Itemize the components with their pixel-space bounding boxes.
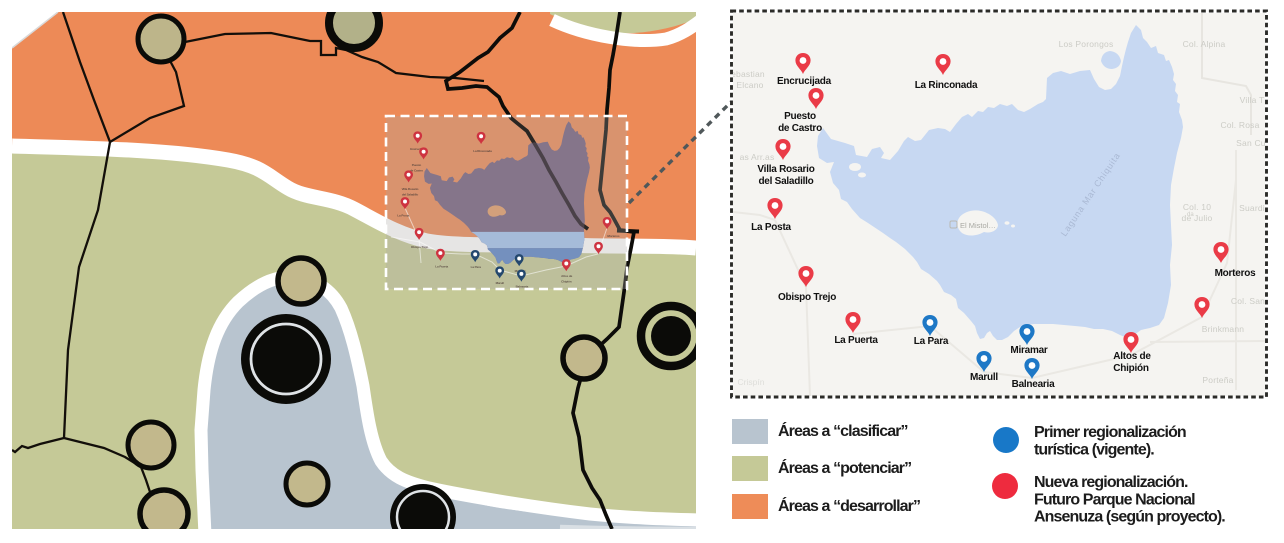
svg-text:Áreas a “potenciar”: Áreas a “potenciar” [778,458,911,477]
svg-text:Marull: Marull [496,281,505,285]
svg-text:Nueva regionalización.: Nueva regionalización. [1034,474,1188,491]
svg-text:Col. Rosa: Col. Rosa [1220,120,1259,130]
svg-text:Puesto: Puesto [412,163,422,167]
svg-text:La Puerta: La Puerta [435,265,448,269]
svg-text:Marull: Marull [970,372,998,383]
svg-text:ebastian: ebastian [731,69,765,79]
svg-text:del Saladillo: del Saladillo [758,176,813,187]
svg-text:La Posta: La Posta [751,222,791,233]
svg-text:Obispo Trejo: Obispo Trejo [411,245,428,249]
svg-text:Porteña: Porteña [1202,375,1233,385]
svg-text:del Saladillo: del Saladillo [402,193,418,197]
svg-text:Col. San: Col. San [1231,296,1265,306]
svg-text:Brinkmann: Brinkmann [1202,324,1245,334]
svg-text:turística (vigente).: turística (vigente). [1034,441,1154,458]
svg-text:Futuro Parque Nacional: Futuro Parque Nacional [1034,491,1195,508]
svg-text:La Para: La Para [914,336,949,347]
svg-text:San Cui: San Cui [1236,138,1268,148]
svg-text:La Posta: La Posta [397,213,409,217]
svg-text:Ansenuza (según proyecto).: Ansenuza (según proyecto). [1034,509,1225,526]
svg-text:La Puerta: La Puerta [834,335,878,346]
svg-text:La Rinconada: La Rinconada [473,149,492,153]
svg-text:Los Porongos: Los Porongos [1059,39,1114,49]
svg-text:Col. Alpina: Col. Alpina [1183,39,1226,49]
svg-text:Primer regionalización: Primer regionalización [1034,424,1186,441]
svg-text:El Mistol…: El Mistol… [960,221,996,230]
svg-text:Áreas a “desarrollar”: Áreas a “desarrollar” [778,496,920,515]
svg-text:Puesto: Puesto [784,111,816,122]
svg-text:Col. 10: Col. 10 [1183,202,1211,212]
svg-text:Elcano: Elcano [736,80,763,90]
svg-text:Miramar: Miramar [1010,345,1048,356]
svg-text:Villa Rosario: Villa Rosario [757,164,814,175]
svg-text:Chipión: Chipión [561,279,572,283]
svg-text:Altos de: Altos de [561,274,572,278]
svg-text:de Castro: de Castro [778,123,822,134]
svg-text:La Para: La Para [471,265,482,269]
svg-text:La Rinconada: La Rinconada [915,80,978,91]
svg-text:da: da [1187,212,1194,218]
svg-text:Villa Rosario: Villa Rosario [402,187,419,191]
svg-text:Chipión: Chipión [1113,363,1149,374]
svg-text:as Arr.as: as Arr.as [740,152,775,162]
svg-text:Morteros: Morteros [1215,268,1256,279]
svg-text:Altos de: Altos de [1113,351,1151,362]
svg-text:Suardi: Suardi [1239,203,1265,213]
svg-text:Áreas a “clasificar”: Áreas a “clasificar” [778,421,908,440]
svg-text:Encrucijada: Encrucijada [777,76,832,87]
svg-text:Morteros: Morteros [607,234,619,238]
svg-text:Villa T: Villa T [1240,95,1265,105]
svg-text:Balnearia: Balnearia [1012,379,1055,390]
svg-text:Obispo Trejo: Obispo Trejo [778,292,836,303]
svg-text:Crispín: Crispín [738,377,765,387]
